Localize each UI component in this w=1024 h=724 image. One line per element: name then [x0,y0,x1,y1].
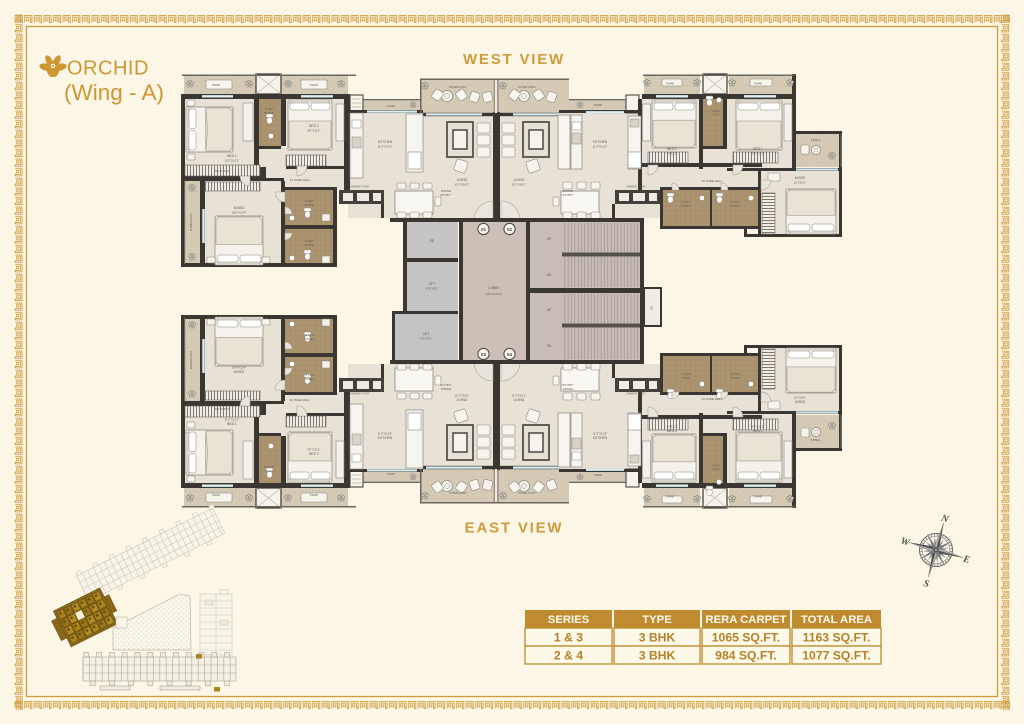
svg-text:LIFT: LIFT [429,282,436,286]
svg-text:TOILET: TOILET [681,200,691,204]
svg-text:KITCHEN: KITCHEN [378,436,393,440]
svg-text:5'WAP: 5'WAP [310,493,318,497]
svg-text:MANDIR 7'X3'8": MANDIR 7'X3'8" [351,185,370,189]
svg-text:8'4"X8'7": 8'4"X8'7" [440,383,451,387]
svg-text:5'WAP: 5'WAP [212,83,220,87]
svg-text:UP: UP [547,237,551,241]
svg-text:W.D/BALCONY: W.D/BALCONY [189,213,193,231]
svg-text:M.BED: M.BED [795,400,806,404]
svg-text:7'5"X4'0": 7'5"X4'0" [304,203,314,207]
svg-text:33' WIDE WALL: 33' WIDE WALL [702,179,723,183]
svg-text:33' WIDE WALL: 33' WIDE WALL [702,397,723,401]
svg-text:WEST VIEW: WEST VIEW [463,51,565,68]
svg-text:TOILET: TOILET [304,199,314,203]
svg-text:BED 2: BED 2 [309,124,319,128]
svg-text:M.BED: M.BED [234,370,245,374]
svg-text:BED 2: BED 2 [667,147,677,151]
svg-text:11'3"X16'1": 11'3"X16'1" [511,394,526,398]
svg-text:01: 01 [481,227,487,232]
svg-text:TOILET: TOILET [304,377,314,381]
svg-text:7'5"X4'0": 7'5"X4'0" [681,204,691,208]
svg-text:1065 SQ.FT.: 1065 SQ.FT. [712,631,780,645]
svg-text:LIVING: LIVING [457,178,468,182]
svg-text:8'4"X8'7": 8'4"X8'7" [562,193,573,197]
svg-text:9'X11'1": 9'X11'1" [667,425,678,429]
svg-text:W.D/BALCONY: W.D/BALCONY [189,351,193,369]
svg-text:11'0"X11'1": 11'0"X11'1" [225,418,240,422]
svg-text:4'10"X5'1": 4'10"X5'1" [426,287,439,291]
svg-text:M.BED: M.BED [234,206,245,210]
svg-text:TOILET: TOILET [730,376,740,380]
svg-text:8'4"X8'7": 8'4"X8'7" [440,193,451,197]
svg-text:2'6"BALCONY: 2'6"BALCONY [449,85,467,89]
svg-text:5'WAP: 5'WAP [310,83,318,87]
svg-text:EAST VIEW: EAST VIEW [465,520,564,537]
svg-text:5'WAP: 5'WAP [666,82,674,86]
svg-text:5'11"X: 5'11"X [713,114,720,117]
svg-text:11'3"X16'1": 11'3"X16'1" [454,183,469,187]
svg-text:10'6"X11'4": 10'6"X11'4" [231,211,246,215]
svg-text:11'3"X11'9": 11'3"X11'9" [593,145,608,149]
svg-text:5'11"X: 5'11"X [713,465,720,468]
svg-text:TOILET: TOILET [264,107,273,111]
svg-text:6'8"BAL.: 6'8"BAL. [811,438,822,442]
svg-text:02: 02 [507,227,513,232]
svg-text:BED 2: BED 2 [667,429,677,433]
svg-text:SERIES: SERIES [548,614,590,626]
svg-text:5'WAP: 5'WAP [754,495,762,499]
svg-text:3 BHK: 3 BHK [639,649,676,663]
svg-text:9'6"X11'1": 9'6"X11'1" [751,425,764,429]
svg-text:DN: DN [547,344,552,348]
svg-text:DN: DN [547,273,552,277]
svg-text:WR 4'2"X6'4": WR 4'2"X6'4" [215,170,230,173]
svg-text:LIVING: LIVING [514,178,525,182]
svg-text:LOBBY: LOBBY [488,286,500,290]
svg-text:6'8"BAL.: 6'8"BAL. [811,138,822,142]
svg-text:5'WAP: 5'WAP [387,472,395,476]
svg-text:TOILET: TOILET [304,239,314,243]
svg-text:(Wing - A): (Wing - A) [64,80,164,105]
svg-text:M.BED: M.BED [795,176,806,180]
svg-text:DINING: DINING [441,387,452,391]
svg-text:KITCHEN: KITCHEN [378,140,393,144]
svg-text:TOILET: TOILET [304,337,314,341]
svg-text:5'WAP: 5'WAP [212,493,220,497]
svg-text:BED 1: BED 1 [753,429,763,433]
svg-text:2'6"BALCONY: 2'6"BALCONY [518,85,536,89]
svg-text:12'X10'6": 12'X10'6" [794,181,807,185]
svg-text:BED 2: BED 2 [309,452,319,456]
svg-text:11'3"X16'1": 11'3"X16'1" [454,394,469,398]
svg-text:TYPE: TYPE [642,614,672,626]
svg-text:RERA CARPET: RERA CARPET [705,614,786,626]
svg-text:9'6"X11'1": 9'6"X11'1" [307,129,320,133]
svg-text:DINING: DINING [563,387,574,391]
svg-text:5'WAP: 5'WAP [666,495,674,499]
svg-text:5'6"X7'5": 5'6"X7'5" [264,466,274,469]
svg-text:1 & 3: 1 & 3 [554,631,583,645]
svg-text:7'5"X4'0": 7'5"X4'0" [730,372,740,376]
svg-text:BED 1: BED 1 [753,147,763,151]
svg-text:BED 1: BED 1 [227,154,237,158]
svg-text:5'WAP: 5'WAP [754,82,762,86]
svg-text:12'X10'6": 12'X10'6" [794,396,807,400]
svg-text:11'3"X11'9": 11'3"X11'9" [378,145,393,149]
svg-text:KITCHEN: KITCHEN [593,436,608,440]
svg-text:984 SQ.FT.: 984 SQ.FT. [715,649,777,663]
svg-text:11'3"X11'9": 11'3"X11'9" [378,432,393,436]
svg-text:5'6"X7'5": 5'6"X7'5" [264,112,274,115]
svg-text:04: 04 [507,352,513,357]
svg-text:2'6"BALCONY: 2'6"BALCONY [518,491,536,495]
svg-text:03: 03 [481,352,487,357]
svg-text:1163 SQ.FT.: 1163 SQ.FT. [803,631,871,645]
svg-text:2'6"BALCONY: 2'6"BALCONY [449,491,467,495]
svg-text:11'3"X16'1": 11'3"X16'1" [511,183,526,187]
svg-text:33' WIDE WALL: 33' WIDE WALL [290,398,311,402]
svg-text:KITCHEN: KITCHEN [593,140,608,144]
svg-text:ORCHID: ORCHID [67,58,149,80]
svg-text:ED: ED [430,239,435,243]
svg-text:8'10"X21'11": 8'10"X21'11" [486,292,503,296]
svg-text:11'3"X11'9": 11'3"X11'9" [593,432,608,436]
svg-text:9'6"X11'1": 9'6"X11'1" [751,152,764,156]
svg-text:5'WAP: 5'WAP [594,103,602,107]
svg-text:33' WIDE WALL: 33' WIDE WALL [290,178,311,182]
svg-text:2 & 4: 2 & 4 [554,649,583,663]
svg-text:TOILET: TOILET [730,200,740,204]
svg-text:LIVING: LIVING [514,398,525,402]
svg-text:ED: ED [650,306,654,310]
svg-text:4'10"X5'1": 4'10"X5'1" [420,337,433,341]
svg-text:LIVING: LIVING [457,398,468,402]
svg-text:TOTAL AREA: TOTAL AREA [801,614,872,626]
svg-text:9'6"X11'1": 9'6"X11'1" [307,448,320,452]
svg-text:8'4"X8'7": 8'4"X8'7" [562,383,573,387]
svg-text:BED 1: BED 1 [227,422,237,426]
svg-text:7'5"X4'0": 7'5"X4'0" [304,373,314,377]
svg-text:MANDIR 7'X3'8": MANDIR 7'X3'8" [351,392,370,396]
svg-text:11'0"X11'1": 11'0"X11'1" [225,159,240,163]
svg-text:MANDIR 7'X3'8": MANDIR 7'X3'8" [627,392,646,396]
svg-text:5'WAP: 5'WAP [387,104,395,108]
svg-text:WR 4'2"X6'4": WR 4'2"X6'4" [215,408,230,411]
svg-text:UP: UP [547,308,551,312]
svg-text:TOILET: TOILET [264,469,273,473]
svg-text:7'5"X4'0": 7'5"X4'0" [681,372,691,376]
svg-text:MANDIR 7'X3'8": MANDIR 7'X3'8" [627,185,646,189]
svg-text:9'X11'1": 9'X11'1" [667,152,678,156]
svg-text:7'5"X4'0": 7'5"X4'0" [304,243,314,247]
svg-text:TOILET: TOILET [681,376,691,380]
svg-text:LIFT: LIFT [423,332,430,336]
svg-text:1077 SQ.FT.: 1077 SQ.FT. [802,649,870,663]
svg-text:5'WAP: 5'WAP [594,473,602,477]
svg-text:3 BHK: 3 BHK [639,631,676,645]
svg-text:7'5"X4'0": 7'5"X4'0" [304,333,314,337]
svg-text:TOILET: TOILET [712,468,721,471]
svg-text:7'5"X4'0": 7'5"X4'0" [730,204,740,208]
svg-text:10'6"X11'4": 10'6"X11'4" [231,366,246,370]
